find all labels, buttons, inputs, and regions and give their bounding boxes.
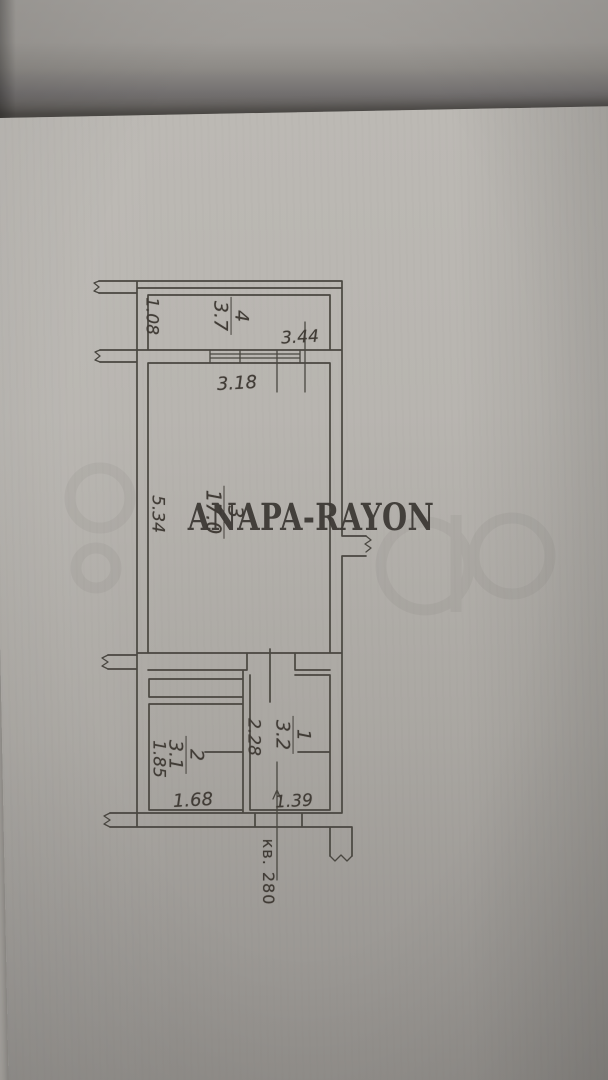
room-4-number: 4 <box>232 306 251 326</box>
room-1-label: 1 3.2 <box>273 716 312 754</box>
dim-room4-depth: 1.08 <box>143 297 160 335</box>
dim-room2-width: 1.68 <box>173 791 214 811</box>
photo-of-floor-plan: 4 3.7 3 17.0 2 3.1 1 3.2 1.08 3.44 3.18 … <box>0 0 608 1080</box>
room-2-label: 2 3.1 <box>166 736 205 774</box>
faint-ghost-watermark <box>70 468 550 612</box>
apartment-number-label: кв. 280 <box>260 839 276 906</box>
room-2-area: 3.1 <box>166 736 186 774</box>
dim-room2-depth: 1.85 <box>150 740 167 778</box>
dim-room3-depth: 5.34 <box>149 495 166 533</box>
room-1-number: 1 <box>294 725 313 745</box>
room-4-area: 3.7 <box>211 297 231 335</box>
listing-watermark: ANAPA-RAYON <box>188 495 434 539</box>
room-2-number: 2 <box>187 745 206 765</box>
dim-room4-width: 3.44 <box>281 329 320 348</box>
room-1-area: 3.2 <box>273 716 293 754</box>
floor-plan-drawing <box>0 0 608 1080</box>
dim-room3-window: 3.18 <box>217 374 258 394</box>
room-4-label: 4 3.7 <box>211 297 250 335</box>
window-lines <box>210 350 300 363</box>
wall-lines <box>99 281 366 856</box>
dim-room1-width: 1.39 <box>275 793 314 812</box>
dim-room1-depth: 2.28 <box>245 718 262 756</box>
